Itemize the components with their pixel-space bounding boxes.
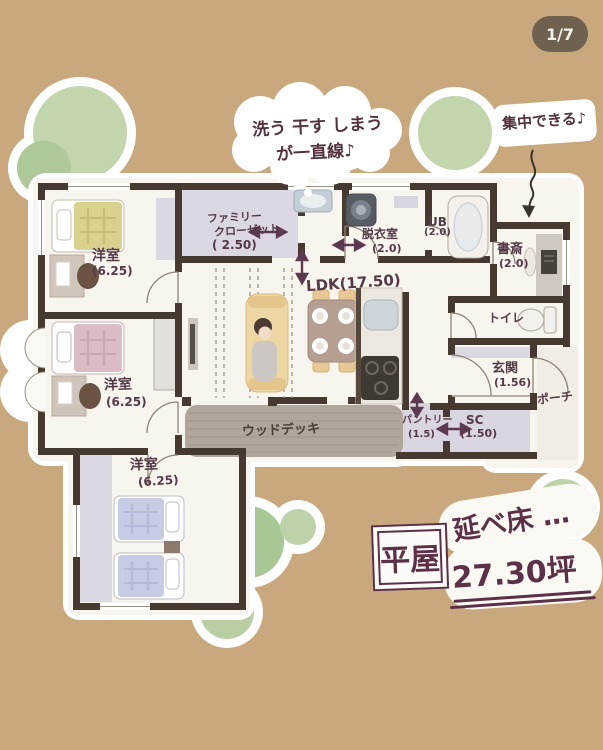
label-bedroom-middle-area: (6.25) [106, 396, 147, 409]
floor-plan-post: 1/7 洗う 干す しまう が一直線♪ 集中できる♪ 洋室 (6.25) ファミ… [0, 0, 603, 750]
bedroom-top-closet [156, 198, 176, 260]
label-study-area: (2.0) [499, 258, 529, 270]
sofa [246, 294, 288, 392]
bedroom-bottom-closet [80, 452, 112, 602]
label-shoe-closet-area: (1.50) [460, 428, 497, 440]
label-bedroom-middle: 洋室 [104, 378, 132, 394]
tv-board [188, 318, 198, 370]
floor-area-value: 27.30坪 [450, 543, 595, 597]
label-bedroom-top: 洋室 [92, 249, 120, 264]
nightstand [164, 541, 180, 553]
floor-area-value-wrap: 27.30坪 [450, 543, 596, 609]
house-type-text: 平屋 [379, 534, 440, 580]
bedroom-middle-closet [154, 316, 176, 390]
label-study: 書斎 [497, 243, 523, 257]
label-shoe-closet: SC [466, 414, 483, 427]
laundry-sink [294, 190, 332, 212]
label-pantry-area: (1.5) [408, 430, 435, 441]
bed-top [52, 200, 124, 252]
label-unit-bath-area: (2.0) [424, 228, 451, 239]
label-bedroom-bottom-area: (6.25) [138, 474, 179, 489]
kitchen-sink [364, 300, 398, 330]
label-bedroom-top-area: (6.25) [92, 265, 133, 278]
bed-middle [52, 322, 124, 374]
label-dressing-room: 脱衣室 [362, 228, 398, 241]
label-family-closet-area: ( 2.50) [212, 239, 257, 252]
tree-top-right [409, 87, 501, 179]
carousel-page-badge: 1/7 [532, 16, 588, 52]
label-entrance: 玄関 [492, 362, 518, 376]
label-toilet: トイレ [488, 312, 524, 325]
kitchen [356, 288, 402, 404]
bathtub [448, 196, 488, 258]
label-entrance-area: (1.56) [494, 377, 531, 389]
laundry-bubble-line2: が一直線♪ [275, 136, 355, 165]
label-dressing-room-area: (2.0) [372, 243, 402, 255]
label-pantry: パントリー [402, 416, 453, 427]
label-wood-deck: ウッドデッキ [242, 423, 320, 439]
dining-set [308, 290, 358, 372]
house-type-box: 平屋 [371, 523, 449, 592]
label-bedroom-bottom: 洋室 [130, 458, 158, 474]
person-blanket [252, 341, 277, 381]
